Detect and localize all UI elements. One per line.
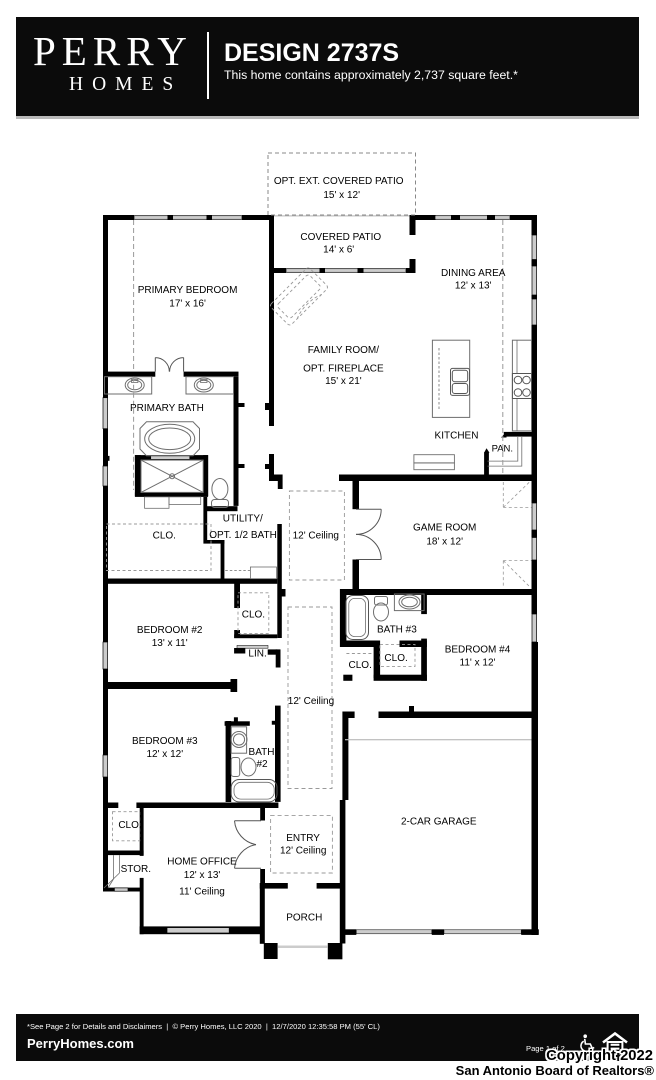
svg-text:13' x 11': 13' x 11' bbox=[152, 638, 188, 649]
svg-text:BATH #3: BATH #3 bbox=[377, 625, 417, 636]
svg-text:LIN.: LIN. bbox=[248, 649, 266, 660]
svg-text:OPT. FIREPLACE: OPT. FIREPLACE bbox=[303, 364, 384, 375]
svg-text:12' Ceiling: 12' Ceiling bbox=[288, 696, 334, 707]
svg-text:CLO.: CLO. bbox=[242, 610, 265, 621]
svg-text:OPT. EXT. COVERED PATIO: OPT. EXT. COVERED PATIO bbox=[274, 176, 404, 187]
svg-text:2-CAR GARAGE: 2-CAR GARAGE bbox=[401, 817, 477, 828]
svg-text:PAN.: PAN. bbox=[492, 444, 513, 455]
svg-text:CLO.: CLO. bbox=[153, 531, 176, 542]
svg-text:CLO.: CLO. bbox=[349, 660, 372, 671]
svg-text:HOME OFFICE: HOME OFFICE bbox=[167, 857, 237, 868]
svg-text:ENTRY: ENTRY bbox=[286, 833, 320, 844]
svg-text:BATH: BATH bbox=[249, 747, 275, 758]
svg-text:12' Ceiling: 12' Ceiling bbox=[293, 531, 339, 542]
svg-text:18' x 12': 18' x 12' bbox=[426, 537, 463, 548]
svg-text:COVERED PATIO: COVERED PATIO bbox=[300, 232, 381, 243]
svg-text:#2: #2 bbox=[256, 759, 268, 770]
svg-text:OPT. 1/2 BATH: OPT. 1/2 BATH bbox=[209, 530, 277, 541]
svg-text:PORCH: PORCH bbox=[286, 913, 322, 924]
svg-text:UTILITY/: UTILITY/ bbox=[223, 514, 263, 525]
svg-text:CLO.: CLO. bbox=[118, 820, 141, 831]
svg-text:DINING AREA: DINING AREA bbox=[441, 268, 506, 279]
svg-text:12' x 13': 12' x 13' bbox=[184, 870, 221, 881]
svg-text:12' x 13': 12' x 13' bbox=[455, 281, 492, 292]
svg-text:PRIMARY BATH: PRIMARY BATH bbox=[130, 403, 204, 414]
svg-text:KITCHEN: KITCHEN bbox=[435, 431, 479, 442]
svg-text:14' x 6': 14' x 6' bbox=[323, 245, 354, 256]
svg-text:BEDROOM #2: BEDROOM #2 bbox=[137, 625, 203, 636]
svg-text:PRIMARY BEDROOM: PRIMARY BEDROOM bbox=[138, 285, 238, 296]
svg-text:12' x 12': 12' x 12' bbox=[146, 749, 183, 760]
svg-text:15' x 21': 15' x 21' bbox=[325, 376, 362, 387]
svg-text:12' Ceiling: 12' Ceiling bbox=[280, 846, 326, 857]
svg-text:17' x 16': 17' x 16' bbox=[169, 299, 206, 310]
svg-text:GAME ROOM: GAME ROOM bbox=[413, 523, 476, 534]
svg-text:11' x 12': 11' x 12' bbox=[460, 658, 496, 669]
svg-text:CLO.: CLO. bbox=[384, 653, 407, 664]
svg-text:STOR.: STOR. bbox=[121, 864, 151, 875]
svg-text:15' x 12': 15' x 12' bbox=[323, 190, 360, 201]
svg-text:11' Ceiling: 11' Ceiling bbox=[179, 887, 225, 898]
svg-text:BEDROOM #3: BEDROOM #3 bbox=[132, 736, 198, 747]
svg-text:FAMILY ROOM/: FAMILY ROOM/ bbox=[308, 345, 380, 356]
svg-text:BEDROOM #4: BEDROOM #4 bbox=[445, 645, 511, 656]
